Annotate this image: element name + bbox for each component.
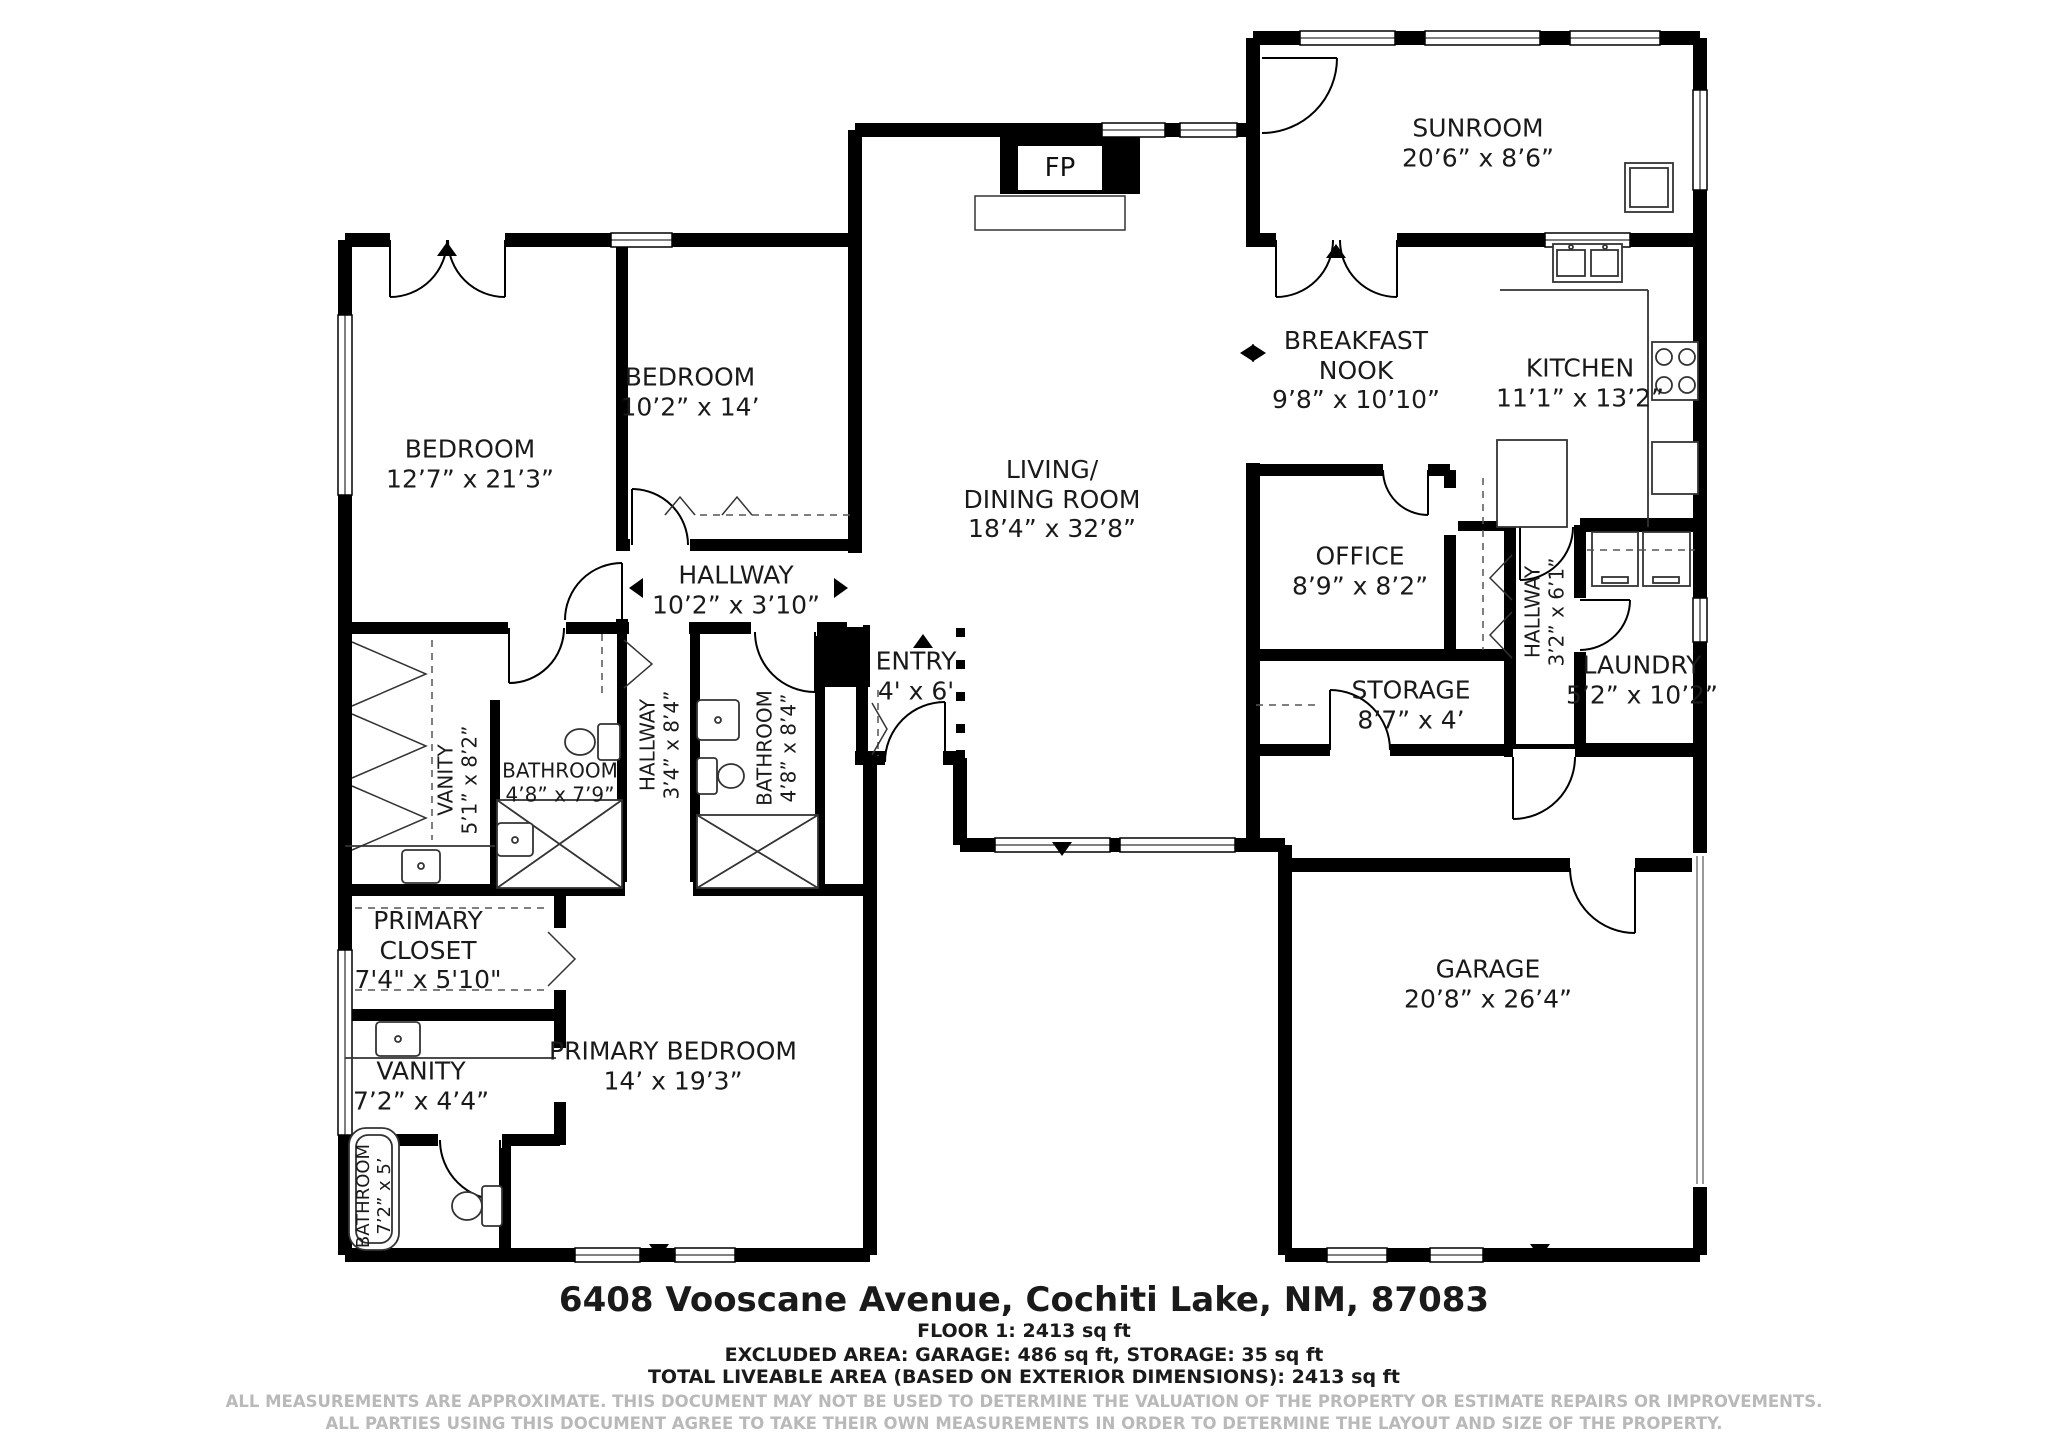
room-label-bathroom-guest: BATHROOM 4’8” x 8’4”: [753, 690, 800, 806]
room-label-living-dining: LIVING/ DINING ROOM 18’4” x 32’8”: [963, 455, 1140, 544]
footer-floor-area: FLOOR 1: 2413 sq ft: [0, 1320, 2048, 1342]
room-label-office: OFFICE 8’9” x 8’2”: [1292, 542, 1428, 601]
footer-address: 6408 Vooscane Avenue, Cochiti Lake, NM, …: [0, 1280, 2048, 1320]
room-label-bedroom-small: BEDROOM 10’2” x 14’: [620, 363, 759, 422]
room-label-kitchen: KITCHEN 11’1” x 13’2”: [1496, 354, 1664, 413]
room-dims: 14’ x 19’3”: [549, 1066, 797, 1096]
room-name: DINING ROOM: [963, 484, 1140, 514]
room-label-sunroom: SUNROOM 20’6” x 8’6”: [1402, 114, 1554, 173]
room-dims: 20’6” x 8’6”: [1402, 143, 1554, 173]
room-dims: 5’2” x 10’2”: [1566, 680, 1718, 710]
floorplan-page: SUNROOM 20’6” x 8’6” BREAKFAST NOOK 9’8”…: [0, 0, 2048, 1448]
room-label-entry: ENTRY 4' x 6': [876, 647, 957, 706]
room-dims: 5’1” x 8’2”: [458, 726, 482, 835]
room-dims: 10’2” x 3’10”: [652, 590, 820, 620]
room-dims: 10’2” x 14’: [620, 392, 759, 422]
room-name: VANITY: [353, 1057, 489, 1087]
footer-disclaimer-2: ALL PARTIES USING THIS DOCUMENT AGREE TO…: [0, 1414, 2048, 1433]
room-name: HALLWAY: [1521, 558, 1545, 667]
room-name: GARAGE: [1404, 955, 1572, 985]
room-label-vanity-hall: VANITY 5’1” x 8’2”: [434, 726, 481, 835]
room-name: OFFICE: [1292, 542, 1428, 572]
room-name: STORAGE: [1351, 676, 1470, 706]
room-label-hallway-right: HALLWAY 3’2” x 6’1”: [1521, 558, 1568, 667]
room-dims: 7’2” x 4’4”: [353, 1086, 489, 1116]
room-name: NOOK: [1272, 355, 1440, 385]
room-name: VANITY: [434, 726, 458, 835]
room-name: BEDROOM: [386, 435, 554, 465]
footer-excluded-area: EXCLUDED AREA: GARAGE: 486 sq ft, STORAG…: [0, 1344, 2048, 1366]
room-name: BATHROOM: [753, 690, 777, 806]
room-dims: 4' x 6': [876, 676, 957, 706]
room-dims: 7’2” x 5’: [374, 1144, 395, 1248]
room-name: BATHROOM: [353, 1144, 374, 1248]
room-label-bedroom-large: BEDROOM 12’7” x 21’3”: [386, 435, 554, 494]
room-dims: 18’4” x 32’8”: [963, 514, 1140, 544]
room-label-hallway-main: HALLWAY 10’2” x 3’10”: [652, 561, 820, 620]
room-dims: 7'4" x 5'10": [355, 965, 502, 995]
room-name: LAUNDRY: [1566, 651, 1718, 681]
room-name: ENTRY: [876, 647, 957, 677]
room-dims: 11’1” x 13’2”: [1496, 383, 1664, 413]
room-name: PRIMARY BEDROOM: [549, 1037, 797, 1067]
room-name: CLOSET: [355, 935, 502, 965]
fireplace-label: FP: [1045, 153, 1076, 183]
footer-total-area: TOTAL LIVEABLE AREA (BASED ON EXTERIOR D…: [0, 1366, 2048, 1388]
room-name: BEDROOM: [620, 363, 759, 393]
room-dims: 3’4” x 8’4”: [660, 691, 684, 800]
room-dims: 8’7” x 4’: [1351, 705, 1470, 735]
room-name: HALLWAY: [636, 691, 660, 800]
room-name: SUNROOM: [1402, 114, 1554, 144]
floorplan-drawing: [0, 0, 2048, 1448]
room-label-breakfast-nook: BREAKFAST NOOK 9’8” x 10’10”: [1272, 326, 1440, 415]
room-label-bathroom-primary: BATHROOM 7’2” x 5’: [353, 1144, 395, 1248]
room-label-garage: GARAGE 20’8” x 26’4”: [1404, 955, 1572, 1014]
footer-disclaimer-1: ALL MEASUREMENTS ARE APPROXIMATE. THIS D…: [0, 1392, 2048, 1411]
room-dims: 4’8” x 8’4”: [777, 690, 801, 806]
room-dims: 20’8” x 26’4”: [1404, 984, 1572, 1014]
room-label-laundry: LAUNDRY 5’2” x 10’2”: [1566, 651, 1718, 710]
room-name: KITCHEN: [1496, 354, 1664, 384]
room-name: BATHROOM: [502, 759, 618, 783]
room-dims: 9’8” x 10’10”: [1272, 385, 1440, 415]
room-name: BREAKFAST: [1272, 326, 1440, 356]
room-dims: 12’7” x 21’3”: [386, 464, 554, 494]
room-label-storage: STORAGE 8’7” x 4’: [1351, 676, 1470, 735]
room-label-bathroom-hall: BATHROOM 4’8” x 7’9”: [502, 759, 618, 806]
room-label-primary-bedroom: PRIMARY BEDROOM 14’ x 19’3”: [549, 1037, 797, 1096]
room-dims: 8’9” x 8’2”: [1292, 571, 1428, 601]
room-name: LIVING/: [963, 455, 1140, 485]
room-name: PRIMARY: [355, 906, 502, 936]
room-label-hallway-bath: HALLWAY 3’4” x 8’4”: [636, 691, 683, 800]
room-label-vanity-primary: VANITY 7’2” x 4’4”: [353, 1057, 489, 1116]
fixtures: [345, 146, 1698, 1250]
room-dims: 4’8” x 7’9”: [502, 783, 618, 807]
room-label-primary-closet: PRIMARY CLOSET 7'4" x 5'10": [355, 906, 502, 995]
room-name: HALLWAY: [652, 561, 820, 591]
